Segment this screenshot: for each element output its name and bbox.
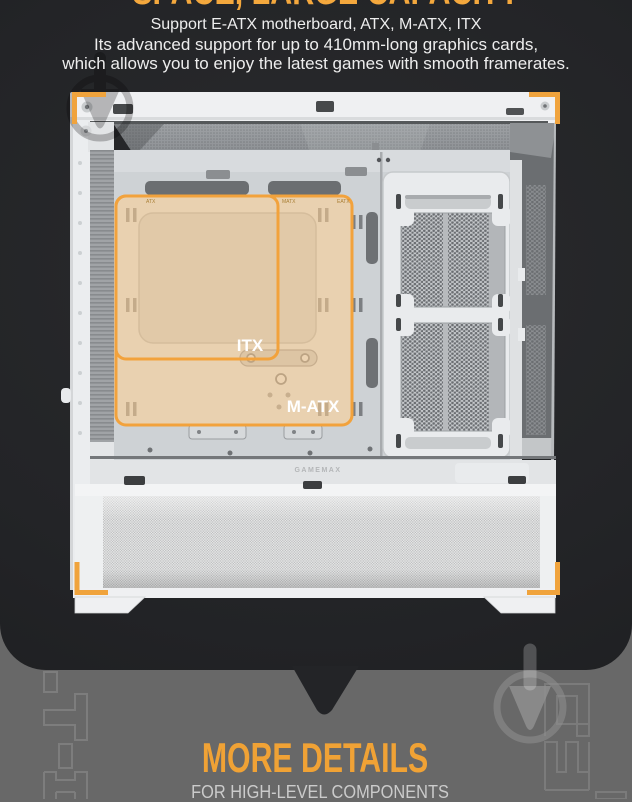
svg-text:M-ATX: M-ATX (287, 397, 340, 416)
svg-text:MATX: MATX (282, 199, 296, 205)
svg-text:ATX: ATX (146, 199, 156, 205)
svg-text:GAMEMAX: GAMEMAX (294, 467, 341, 474)
svg-text:EATX: EATX (337, 199, 350, 205)
svg-text:ITX: ITX (237, 336, 264, 355)
